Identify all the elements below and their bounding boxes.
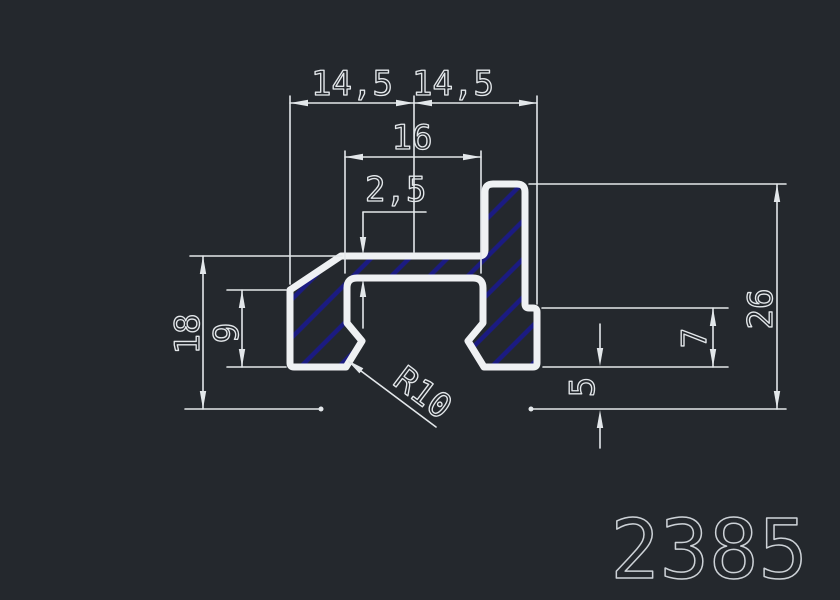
dim-label-left-total-height: 18 [168, 314, 208, 355]
dim-label-base-offset: 5 [563, 377, 603, 397]
dim-label-left-arm-height: 9 [207, 323, 247, 343]
part-number: 2385 [610, 503, 807, 598]
cad-viewport[interactable]: 14,5 14,5 16 2,5 18 9 26 7 5 R10 2385 [0, 0, 840, 600]
dim-label-step-height: 7 [675, 328, 715, 348]
dim-label-slot-width: 16 [392, 118, 433, 158]
reference-dot-right [529, 407, 534, 412]
dim-label-web-thickness: 2,5 [365, 170, 426, 210]
dim-label-total-height: 26 [741, 289, 781, 330]
cad-drawing-canvas[interactable]: 14,5 14,5 16 2,5 18 9 26 7 5 R10 2385 [0, 0, 840, 600]
dim-label-top-right-width: 14,5 [412, 64, 494, 104]
dim-label-top-left-width: 14,5 [311, 64, 393, 104]
reference-dot-left [319, 407, 324, 412]
